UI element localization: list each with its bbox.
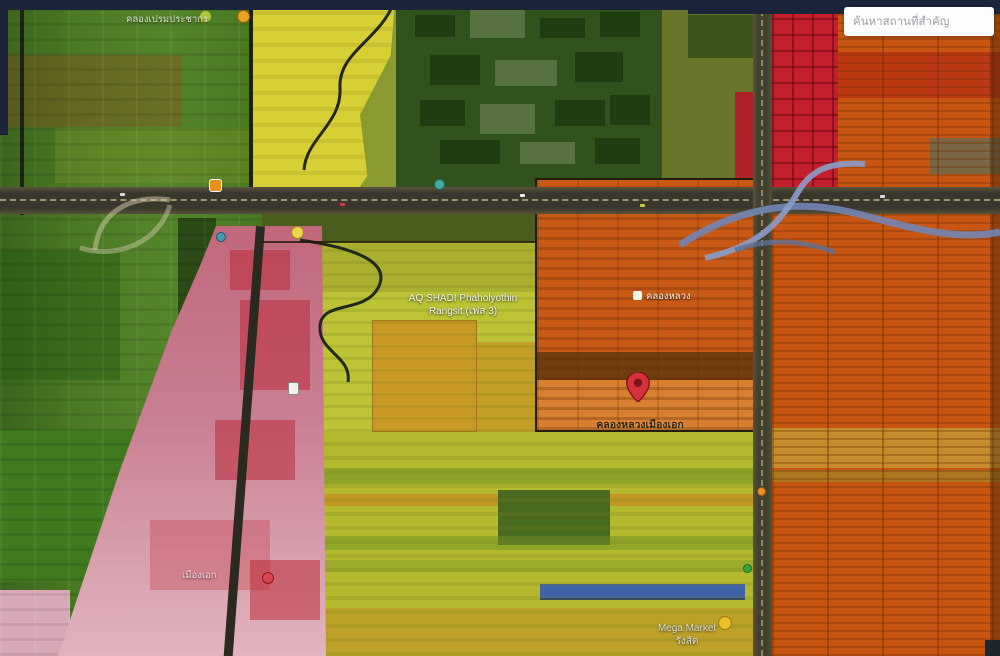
marker-green-circle[interactable] bbox=[199, 10, 212, 23]
marker-teal-circle[interactable] bbox=[216, 232, 226, 242]
search-box bbox=[844, 7, 994, 36]
marker-orange-dot[interactable] bbox=[757, 487, 766, 496]
interchange-flyover bbox=[650, 150, 1000, 280]
location-pin[interactable] bbox=[626, 372, 650, 402]
marker-orange-circle[interactable] bbox=[237, 10, 250, 23]
marker-red-circle[interactable] bbox=[262, 572, 274, 584]
map-edge-navy bbox=[985, 640, 1000, 656]
canal-overlay bbox=[0, 0, 1000, 656]
marker-road-shield-white[interactable] bbox=[288, 382, 299, 395]
search-input[interactable] bbox=[844, 7, 994, 36]
interchange-west bbox=[55, 160, 185, 260]
marker-green-dot[interactable] bbox=[743, 564, 752, 573]
marker-route-shield[interactable] bbox=[209, 179, 222, 192]
marker-yellow-balloon[interactable] bbox=[291, 226, 304, 239]
marker-teal-circle[interactable] bbox=[434, 179, 445, 190]
map-canvas[interactable]: คลองเปรมประชากร AQ SHADI Phaholyothin Ra… bbox=[0, 0, 1000, 656]
map-application: คลองเปรมประชากร AQ SHADI Phaholyothin Ra… bbox=[0, 0, 1000, 656]
map-edge-navy bbox=[0, 0, 8, 135]
district-icon bbox=[633, 291, 642, 300]
marker-yellow-balloon[interactable] bbox=[718, 616, 732, 630]
